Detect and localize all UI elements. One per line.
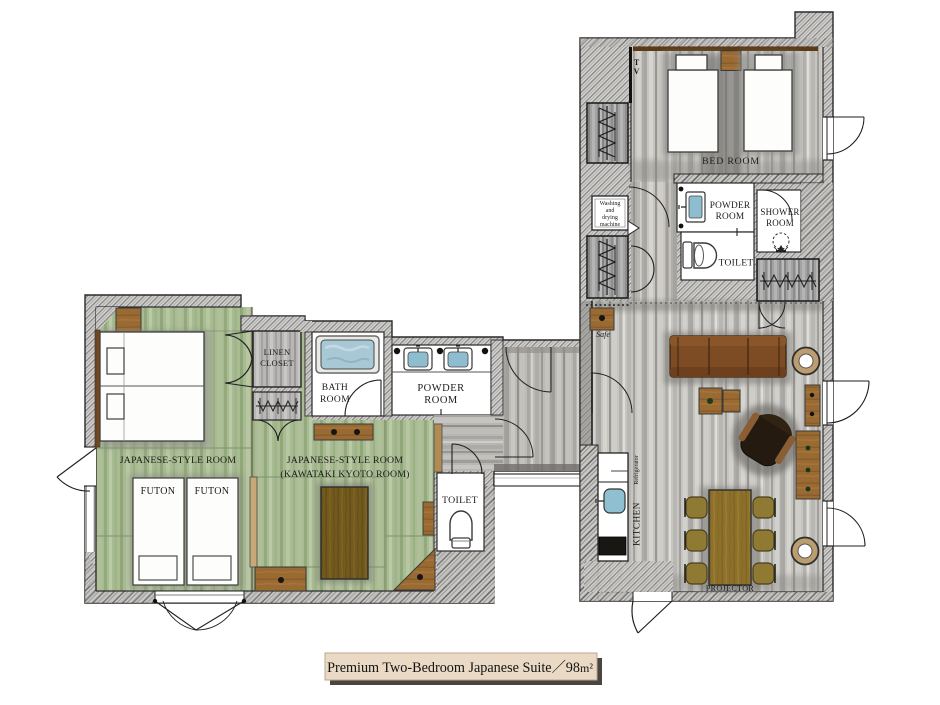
svg-text:FUTON: FUTON: [141, 486, 176, 497]
svg-text:Washing: Washing: [600, 201, 621, 207]
svg-text:PROJECTOR: PROJECTOR: [706, 584, 755, 593]
svg-text:CLOSET: CLOSET: [260, 358, 294, 368]
svg-text:LINEN: LINEN: [264, 347, 291, 357]
svg-text:(KAWATAKI KYOTO ROOM): (KAWATAKI KYOTO ROOM): [280, 469, 409, 480]
svg-text:POWDER: POWDER: [710, 201, 751, 211]
svg-text:POWDER: POWDER: [417, 383, 464, 394]
svg-text:ROOM: ROOM: [424, 395, 458, 406]
svg-text:Premium Two-Bedroom Japanese S: Premium Two-Bedroom Japanese Suite／98m²: [327, 660, 593, 676]
svg-text:ROOM: ROOM: [766, 218, 794, 228]
svg-text:Safe: Safe: [596, 330, 610, 339]
svg-text:ROOM: ROOM: [320, 395, 350, 405]
svg-text:and: and: [606, 208, 615, 214]
svg-text:V: V: [634, 67, 640, 76]
svg-text:T: T: [634, 58, 640, 67]
svg-text:ROOM: ROOM: [716, 212, 745, 222]
svg-text:drying: drying: [602, 215, 618, 221]
svg-text:TOILET: TOILET: [719, 259, 754, 269]
svg-text:JAPANESE-STYLE ROOM: JAPANESE-STYLE ROOM: [287, 455, 403, 466]
svg-text:SHOWER: SHOWER: [760, 207, 799, 217]
svg-text:BED ROOM: BED ROOM: [702, 156, 760, 167]
svg-text:BATH: BATH: [322, 383, 348, 393]
svg-text:machine: machine: [600, 222, 621, 228]
svg-text:Refrigerator: Refrigerator: [633, 455, 640, 484]
svg-text:FUTON: FUTON: [195, 486, 230, 497]
svg-text:KITCHEN: KITCHEN: [632, 502, 642, 546]
svg-text:TOILET: TOILET: [442, 495, 478, 506]
svg-text:JAPANESE-STYLE ROOM: JAPANESE-STYLE ROOM: [120, 455, 236, 466]
